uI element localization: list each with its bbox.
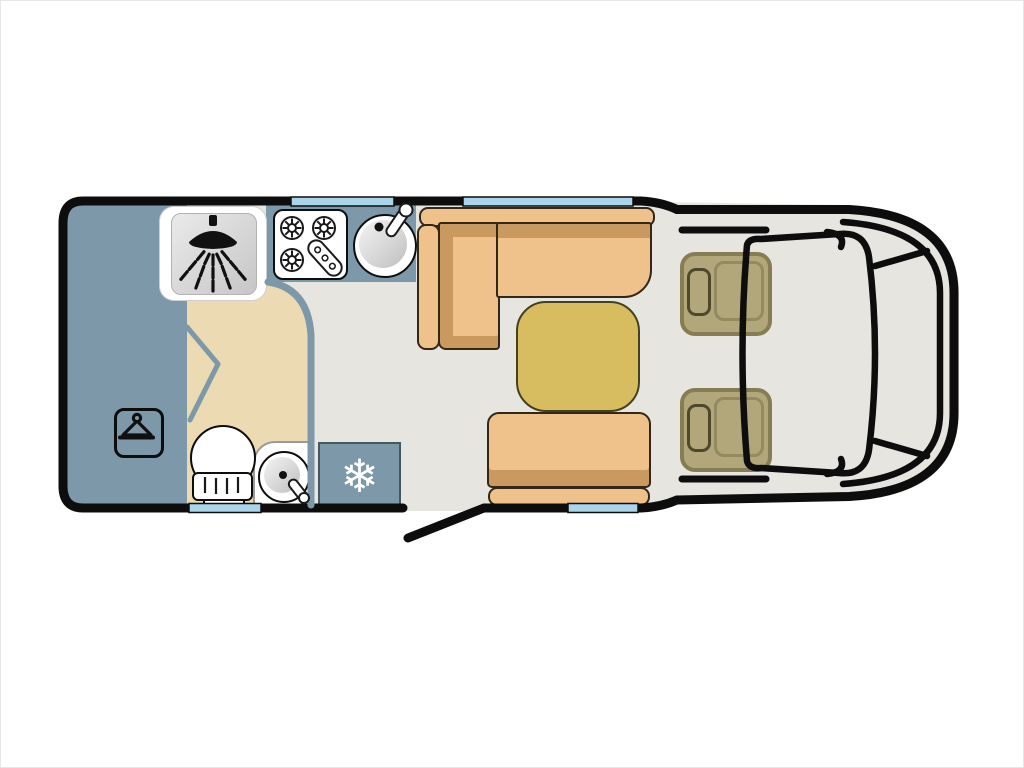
washroom-folding-door (187, 327, 218, 420)
linework-layer (1, 1, 1024, 768)
habitation-wall-outline (63, 201, 677, 508)
hob-control-strip (305, 237, 345, 279)
a-pillar-line-top (875, 251, 927, 266)
entry-door-open (408, 508, 484, 538)
washroom-wall-curve (268, 282, 311, 505)
sink-drain (375, 223, 384, 232)
cowl-hook-bottom (827, 459, 842, 474)
kitchen-tap-knob (400, 204, 413, 217)
shower-icon (181, 215, 245, 291)
basin-tap-knob (299, 493, 309, 503)
window-dinette (463, 197, 633, 206)
gas-burner-icon (281, 217, 303, 239)
cowl-hook-top (827, 232, 842, 247)
toilet-band-ribs (205, 477, 238, 494)
a-pillar-line-bottom (875, 441, 927, 456)
window-bench (568, 504, 638, 513)
gas-burner-icon (313, 217, 335, 239)
hanger-icon (120, 414, 153, 437)
window-washroom (189, 504, 261, 513)
windscreen (743, 234, 876, 474)
window-kitchen (291, 197, 394, 206)
floorplan-canvas: ❄ (0, 0, 1024, 768)
gas-burner-icon (281, 249, 303, 271)
basin-drain (279, 471, 287, 479)
